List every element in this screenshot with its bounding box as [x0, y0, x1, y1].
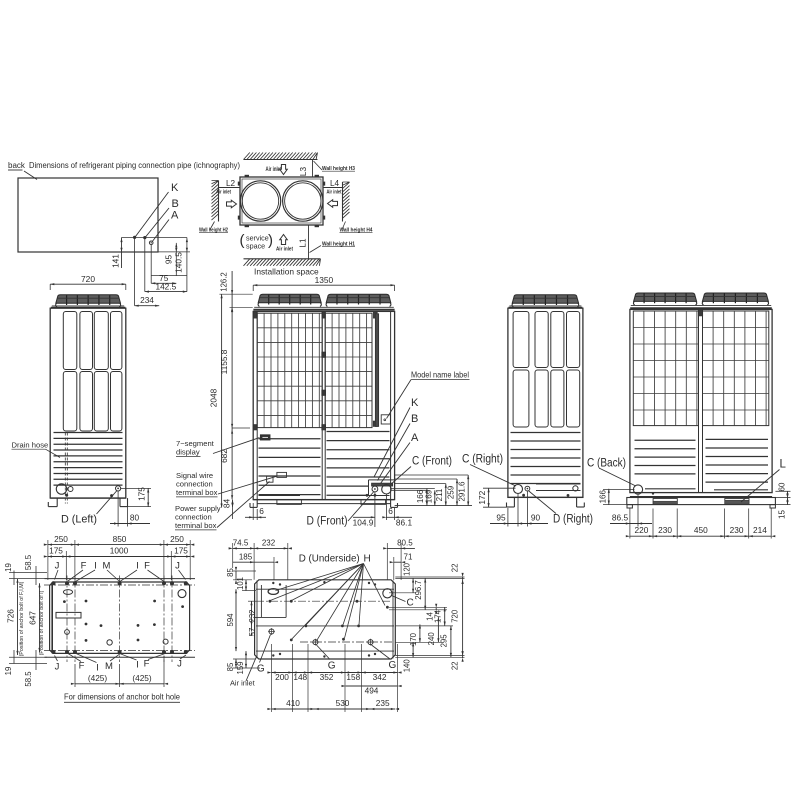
svg-text:Model name label: Model name label	[411, 371, 469, 380]
svg-text:250: 250	[54, 534, 68, 544]
svg-text:D (Underside): D (Underside)	[299, 554, 360, 565]
svg-text:71: 71	[404, 552, 413, 561]
svg-text:232: 232	[262, 539, 276, 548]
svg-text:For dimensions of anchor bolt: For dimensions of anchor bolt hole	[64, 692, 180, 702]
svg-text:J: J	[55, 662, 60, 673]
svg-text:175: 175	[49, 546, 63, 556]
svg-text:185: 185	[239, 552, 253, 561]
svg-text:142.5: 142.5	[155, 281, 176, 291]
svg-text:1350: 1350	[315, 275, 334, 285]
svg-text:80.5: 80.5	[397, 539, 413, 548]
svg-text:G: G	[257, 664, 265, 675]
svg-text:148: 148	[293, 672, 307, 682]
svg-text:58.5: 58.5	[24, 554, 33, 570]
svg-text:250: 250	[170, 534, 184, 544]
svg-text:K: K	[171, 182, 179, 194]
svg-text:D (Left): D (Left)	[61, 514, 97, 526]
svg-text:342: 342	[373, 672, 387, 682]
svg-text:C: C	[407, 598, 414, 609]
svg-text:159: 159	[236, 661, 245, 674]
svg-text:175: 175	[137, 487, 147, 501]
svg-text:172: 172	[477, 490, 487, 504]
svg-text:1000: 1000	[110, 546, 129, 556]
svg-text:D (Front): D (Front)	[307, 516, 348, 528]
svg-text:Installation space: Installation space	[254, 267, 319, 277]
svg-text:85: 85	[226, 662, 235, 671]
svg-text:1155.8: 1155.8	[219, 349, 229, 374]
svg-text:120: 120	[403, 562, 412, 576]
svg-text:726: 726	[6, 609, 16, 623]
svg-text:B: B	[172, 198, 179, 210]
svg-text:22: 22	[450, 661, 459, 670]
svg-text:G: G	[389, 660, 397, 671]
svg-text:terminal box: terminal box	[175, 521, 217, 530]
svg-text:Air inlet: Air inlet	[327, 190, 342, 196]
svg-text:259: 259	[446, 485, 455, 499]
svg-text:235: 235	[376, 698, 390, 708]
svg-text:169: 169	[425, 489, 434, 503]
svg-text:450: 450	[694, 525, 708, 535]
svg-text:K: K	[411, 397, 419, 409]
svg-text:6: 6	[259, 506, 264, 516]
svg-text:682: 682	[219, 449, 229, 463]
svg-text:850: 850	[113, 534, 127, 544]
svg-text:space: space	[246, 242, 265, 251]
svg-text:): )	[268, 232, 273, 249]
svg-text:D (Right): D (Right)	[553, 514, 593, 526]
svg-text:175: 175	[174, 546, 188, 556]
svg-text:C (Front): C (Front)	[412, 456, 452, 468]
svg-text:291.6: 291.6	[458, 481, 467, 502]
svg-text:F: F	[144, 561, 150, 572]
svg-text:F: F	[81, 561, 87, 572]
svg-text:terminal box: terminal box	[176, 488, 218, 497]
svg-text:352: 352	[320, 672, 334, 682]
svg-text:104.9: 104.9	[353, 518, 374, 528]
svg-text:647: 647	[28, 611, 38, 625]
svg-text:A: A	[411, 432, 419, 444]
svg-text:234: 234	[140, 295, 154, 305]
svg-text:19: 19	[4, 667, 13, 676]
svg-text:2048: 2048	[209, 388, 219, 407]
svg-text:H: H	[364, 554, 371, 565]
svg-text:(425): (425)	[88, 673, 108, 683]
svg-text:6: 6	[388, 506, 393, 516]
svg-text:22: 22	[450, 564, 459, 573]
svg-text:Drain hose: Drain hose	[12, 441, 49, 450]
svg-text:(425): (425)	[132, 673, 152, 683]
svg-text:410: 410	[286, 698, 300, 708]
svg-text:L: L	[780, 459, 787, 471]
svg-text:95: 95	[496, 513, 506, 523]
svg-text:166: 166	[599, 489, 608, 503]
svg-text:J: J	[175, 561, 180, 572]
svg-text:126.2: 126.2	[220, 272, 229, 292]
svg-text:57: 57	[248, 628, 257, 637]
svg-text:F: F	[144, 659, 150, 670]
svg-text:86.5: 86.5	[612, 513, 629, 523]
svg-text:B: B	[411, 413, 418, 425]
svg-text:140.5: 140.5	[174, 252, 184, 273]
svg-text:60: 60	[778, 482, 787, 491]
svg-text:84: 84	[221, 499, 231, 509]
svg-text:720: 720	[81, 274, 95, 284]
svg-text:80: 80	[130, 513, 140, 523]
svg-text:Dimensions of refrigerant pipi: Dimensions of refrigerant piping connect…	[29, 160, 240, 170]
svg-text:19: 19	[4, 563, 13, 572]
svg-text:back: back	[8, 161, 26, 170]
svg-text:J: J	[55, 561, 60, 572]
svg-text:74.5: 74.5	[233, 539, 249, 548]
svg-text:95: 95	[163, 255, 173, 265]
svg-text:Air inlet: Air inlet	[266, 167, 282, 173]
svg-text:L3: L3	[299, 167, 308, 177]
svg-text:F: F	[79, 661, 85, 672]
svg-text:296.7: 296.7	[414, 580, 423, 600]
svg-text:(Position of anchor bolt of I): (Position of anchor bolt of I)	[39, 590, 45, 655]
svg-text:J: J	[177, 659, 182, 670]
svg-text:141: 141	[111, 254, 121, 268]
svg-text:295: 295	[440, 634, 449, 648]
svg-text:214: 214	[753, 525, 767, 535]
svg-text:(Position of anchor bolt of F,: (Position of anchor bolt of F,I,M)	[19, 581, 25, 656]
svg-text:494: 494	[365, 685, 379, 695]
svg-text:A: A	[171, 210, 179, 222]
svg-text:85: 85	[226, 568, 235, 577]
svg-text:140: 140	[402, 659, 411, 673]
svg-text:530: 530	[336, 698, 350, 708]
svg-text:Air inlet: Air inlet	[216, 190, 231, 196]
svg-text:232: 232	[248, 609, 257, 622]
svg-text:200: 200	[275, 672, 289, 682]
svg-text:(: (	[240, 232, 245, 249]
svg-text:58.5: 58.5	[24, 671, 33, 687]
svg-text:C (Right): C (Right)	[462, 454, 503, 466]
svg-text:240: 240	[427, 632, 436, 646]
svg-text:Air inlet: Air inlet	[276, 247, 293, 253]
svg-text:I: I	[136, 660, 139, 671]
svg-text:158: 158	[346, 672, 360, 682]
svg-text:G: G	[328, 661, 336, 672]
svg-text:M: M	[105, 661, 113, 672]
svg-text:594: 594	[226, 613, 235, 627]
svg-text:L4: L4	[330, 179, 340, 188]
svg-text:L1: L1	[299, 238, 308, 248]
svg-text:90: 90	[531, 513, 541, 523]
svg-text:211: 211	[435, 488, 444, 501]
svg-text:230: 230	[730, 525, 744, 535]
svg-text:720: 720	[450, 609, 459, 623]
svg-text:230: 230	[658, 525, 672, 535]
svg-text:L2: L2	[226, 179, 236, 188]
svg-text:M: M	[103, 561, 111, 572]
svg-text:C (Back): C (Back)	[587, 458, 626, 470]
svg-text:Air inlet: Air inlet	[230, 679, 255, 688]
svg-text:display: display	[176, 448, 200, 457]
svg-text:86.1: 86.1	[396, 518, 413, 528]
svg-text:15: 15	[778, 510, 787, 519]
svg-text:101: 101	[236, 577, 245, 590]
svg-text:220: 220	[635, 525, 649, 535]
